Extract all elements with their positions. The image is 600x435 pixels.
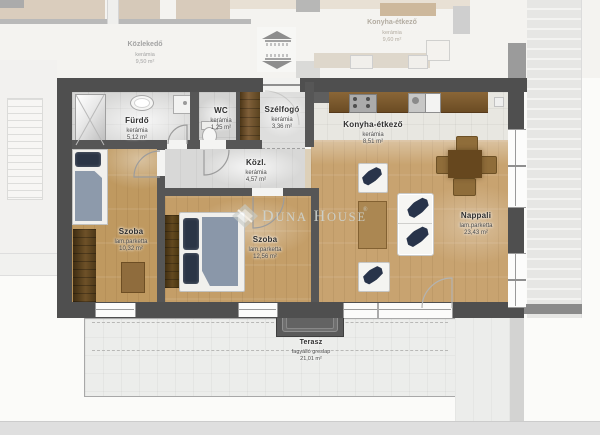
svg-text:DUNA HOUSE: DUNA HOUSE <box>262 208 367 225</box>
svg-text:®: ® <box>363 206 368 213</box>
